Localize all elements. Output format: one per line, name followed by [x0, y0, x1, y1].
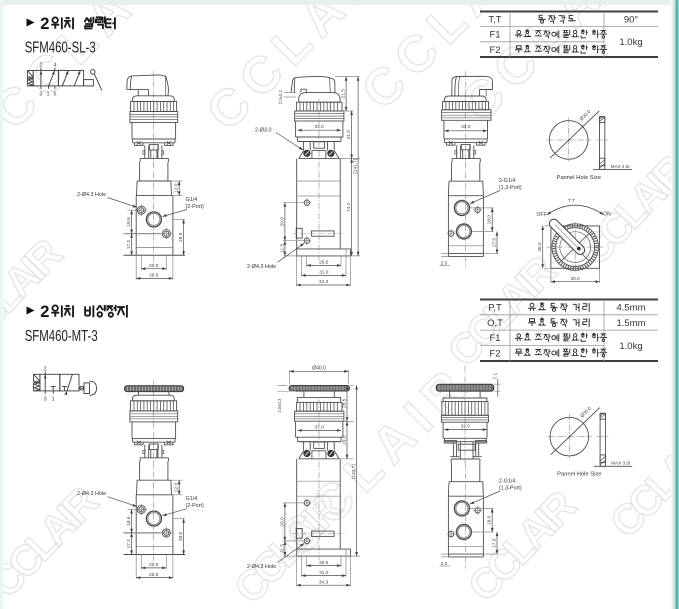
- svg-text:1: 1: [52, 397, 55, 403]
- svg-text:74.2: 74.2: [346, 202, 352, 212]
- svg-text:33.0: 33.0: [461, 124, 471, 130]
- svg-text:1.0kg: 1.0kg: [619, 341, 642, 352]
- svg-text:2-Ø3.0: 2-Ø3.0: [255, 128, 271, 134]
- svg-text:2: 2: [44, 366, 47, 372]
- svg-text:32.0: 32.0: [461, 423, 471, 429]
- svg-text:F1: F1: [489, 333, 500, 344]
- svg-text:2: 2: [39, 63, 42, 69]
- svg-text:90°: 90°: [624, 14, 639, 25]
- svg-text:2.0±0.3: 2.0±0.3: [278, 90, 283, 105]
- svg-text:21.5: 21.5: [341, 89, 347, 99]
- svg-text:F2: F2: [489, 349, 500, 360]
- svg-text:2: 2: [40, 303, 49, 321]
- svg-text:Ø40.0: Ø40.0: [312, 365, 326, 371]
- svg-text:SFM460-SL-3: SFM460-SL-3: [25, 40, 96, 57]
- svg-text:1.5mm: 1.5mm: [616, 318, 645, 329]
- svg-text:3: 3: [39, 92, 42, 98]
- svg-text:F2: F2: [489, 45, 500, 56]
- svg-text:O,T: O,T: [487, 318, 503, 329]
- svg-text:T,T: T,T: [488, 14, 501, 25]
- svg-text:2: 2: [40, 15, 49, 33]
- svg-text:1: 1: [46, 92, 49, 98]
- svg-text:5: 5: [53, 92, 56, 98]
- svg-text:31.0: 31.0: [346, 130, 352, 140]
- svg-text:2.0±0.3: 2.0±0.3: [277, 398, 282, 413]
- svg-text:3: 3: [44, 397, 47, 403]
- svg-text:P,T: P,T: [488, 303, 502, 314]
- svg-text:(141.7): (141.7): [353, 158, 359, 174]
- svg-text:30.0: 30.0: [571, 276, 581, 282]
- svg-text:F1: F1: [489, 30, 500, 41]
- svg-text:37.0: 37.0: [315, 424, 325, 430]
- svg-text:SFM460-MT-3: SFM460-MT-3: [25, 328, 98, 345]
- svg-text:4: 4: [53, 63, 56, 69]
- svg-text:ON: ON: [603, 211, 611, 217]
- svg-text:28.5: 28.5: [342, 398, 348, 408]
- svg-text:4.5mm: 4.5mm: [616, 303, 645, 314]
- svg-text:OFF: OFF: [537, 212, 547, 218]
- svg-text:(133.7): (133.7): [351, 464, 357, 480]
- svg-text:30.0: 30.0: [537, 242, 543, 252]
- svg-text:T.T: T.T: [568, 198, 575, 204]
- svg-text:1.0kg: 1.0kg: [619, 37, 642, 48]
- svg-text:29.0: 29.0: [342, 435, 348, 445]
- svg-text:33.0: 33.0: [315, 124, 325, 130]
- svg-text:7.1: 7.1: [492, 373, 498, 380]
